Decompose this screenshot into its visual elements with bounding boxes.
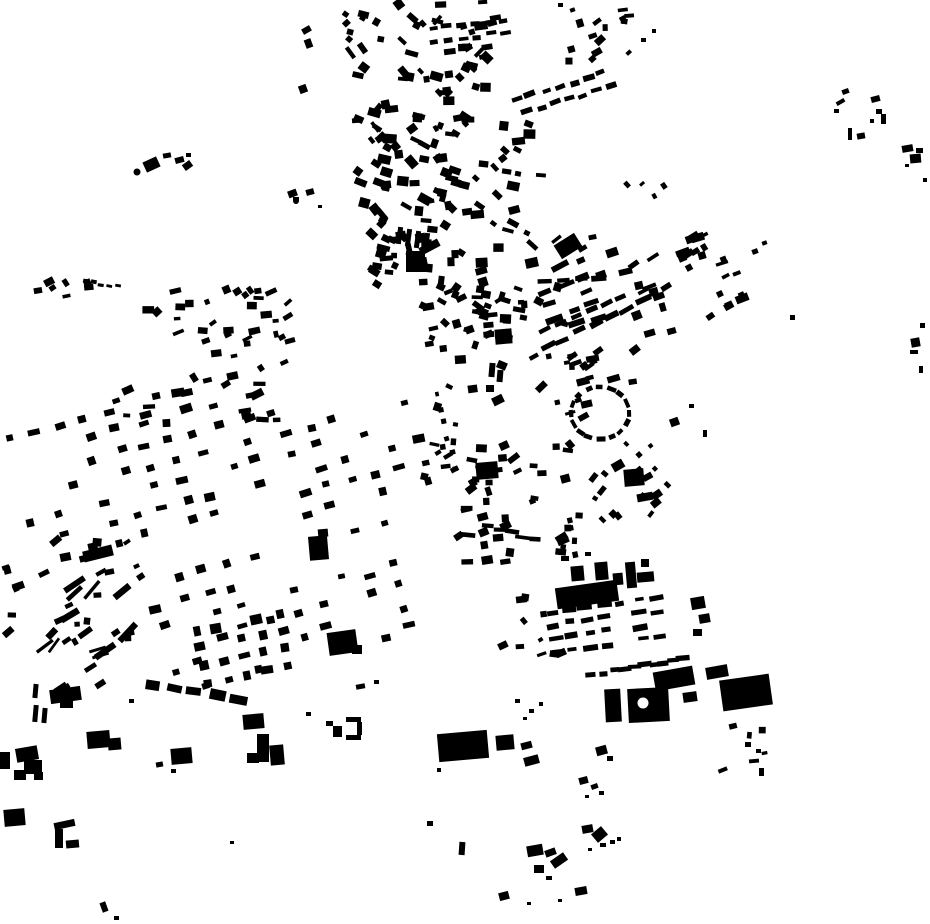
building [203, 679, 212, 688]
building [259, 646, 268, 656]
building [340, 455, 349, 464]
building [280, 643, 289, 653]
building [570, 400, 576, 408]
building [682, 691, 697, 703]
building [429, 70, 444, 82]
building [588, 234, 597, 240]
building [635, 294, 652, 306]
building [372, 17, 381, 27]
building [167, 683, 183, 694]
building [427, 821, 433, 826]
building [790, 315, 795, 320]
building [345, 46, 356, 59]
building [529, 352, 539, 360]
building [266, 409, 275, 417]
building [649, 594, 664, 602]
building [759, 768, 764, 776]
building [567, 45, 576, 53]
building [374, 680, 379, 684]
building [429, 442, 439, 447]
building [500, 145, 510, 155]
building [399, 605, 408, 614]
building [535, 380, 548, 393]
building [564, 94, 575, 101]
building [570, 79, 580, 87]
building [121, 384, 134, 395]
building [269, 744, 285, 765]
building [555, 548, 566, 556]
building [254, 288, 262, 295]
building [99, 901, 108, 912]
building [48, 638, 60, 654]
building [287, 189, 298, 199]
building [319, 600, 329, 608]
building [513, 146, 522, 154]
building [759, 727, 766, 734]
building [478, 527, 490, 538]
building [605, 247, 619, 259]
building [385, 269, 394, 275]
building [250, 553, 260, 561]
building [55, 829, 63, 848]
building [447, 257, 454, 266]
building [6, 434, 14, 442]
building [923, 178, 927, 182]
building [99, 499, 110, 507]
building [470, 21, 479, 26]
building [700, 243, 708, 252]
building [525, 257, 539, 269]
building [580, 287, 593, 296]
building [243, 437, 252, 446]
building [507, 452, 520, 464]
figure-ground-map [0, 0, 930, 924]
building [391, 261, 399, 270]
building [121, 466, 131, 476]
building [213, 420, 224, 430]
building [527, 902, 531, 905]
building [302, 510, 313, 519]
building [414, 206, 423, 216]
building [586, 355, 600, 363]
building [553, 443, 560, 450]
building [198, 327, 208, 334]
building [24, 760, 42, 774]
building [485, 480, 492, 486]
building [585, 375, 594, 381]
building [575, 512, 583, 518]
building [209, 688, 227, 702]
building [221, 285, 231, 295]
building [721, 273, 730, 280]
courtyard-hole [638, 698, 649, 709]
building [402, 621, 415, 629]
building [537, 104, 547, 112]
building [537, 287, 551, 297]
building [104, 408, 116, 416]
building [554, 399, 560, 405]
building [186, 153, 191, 157]
building [729, 723, 738, 730]
building [749, 759, 759, 764]
building [405, 243, 412, 253]
building [751, 248, 758, 255]
building [256, 417, 269, 423]
building [857, 132, 866, 139]
building [685, 263, 694, 272]
building [229, 694, 248, 706]
building [429, 26, 437, 31]
building [209, 319, 217, 326]
building [555, 83, 566, 91]
building [472, 35, 481, 41]
building [588, 848, 592, 851]
building [561, 321, 569, 328]
building [301, 25, 312, 35]
building [632, 623, 648, 632]
building [148, 604, 161, 615]
building [427, 226, 438, 234]
building [544, 847, 557, 857]
building [237, 602, 246, 609]
building [394, 579, 402, 587]
building [600, 843, 606, 847]
building [834, 109, 839, 113]
building [354, 177, 368, 188]
building [599, 671, 607, 677]
building [14, 770, 26, 780]
building [693, 629, 702, 636]
building [346, 735, 361, 740]
building [382, 142, 392, 152]
building [576, 256, 586, 264]
building [513, 286, 522, 293]
building [315, 464, 328, 473]
building [542, 299, 556, 308]
building [659, 302, 667, 312]
building [289, 586, 298, 593]
building [549, 635, 564, 642]
building [172, 668, 180, 676]
building [443, 37, 452, 43]
building [59, 552, 71, 562]
building [365, 227, 378, 240]
building [523, 129, 535, 139]
building [142, 156, 160, 172]
building [109, 519, 119, 527]
building [870, 95, 880, 103]
building [594, 561, 609, 580]
building [187, 429, 197, 439]
building [625, 49, 632, 56]
building [409, 180, 419, 186]
building [664, 481, 672, 489]
building [486, 30, 497, 35]
building [430, 138, 439, 149]
building [129, 699, 134, 703]
building [542, 88, 551, 95]
building [456, 22, 466, 28]
building [440, 444, 446, 450]
building [444, 436, 450, 442]
building [204, 298, 211, 305]
building [501, 514, 509, 522]
building [617, 837, 621, 841]
building [33, 287, 42, 294]
building [641, 38, 646, 42]
building [370, 470, 380, 480]
building [459, 842, 466, 855]
building [156, 504, 168, 511]
building [123, 539, 131, 546]
building [429, 39, 438, 45]
building [546, 353, 552, 359]
building [597, 485, 607, 496]
building [34, 772, 43, 780]
building [232, 287, 242, 297]
building [719, 674, 773, 712]
building [266, 615, 275, 624]
building [561, 556, 569, 561]
building [174, 317, 181, 321]
building [500, 314, 512, 323]
building [496, 370, 503, 382]
building [140, 528, 148, 537]
building [564, 525, 571, 532]
building [627, 410, 631, 417]
building [564, 631, 578, 639]
building [0, 752, 10, 769]
building [499, 121, 509, 131]
building [64, 602, 73, 609]
building [92, 538, 102, 547]
building [238, 651, 251, 659]
building [364, 572, 376, 580]
building [583, 644, 599, 652]
building [523, 754, 540, 767]
building [435, 1, 446, 8]
building [592, 495, 599, 501]
building [705, 664, 729, 680]
building [669, 417, 680, 428]
building [419, 279, 428, 286]
building [55, 421, 67, 431]
building [439, 345, 447, 352]
building [380, 166, 394, 178]
building [150, 481, 159, 489]
building [578, 93, 588, 100]
building [421, 239, 431, 247]
building [490, 163, 499, 172]
building [242, 670, 251, 680]
building [870, 119, 874, 123]
building [667, 327, 677, 335]
building [342, 19, 351, 28]
building [660, 282, 672, 292]
building [230, 463, 238, 470]
building [482, 523, 494, 528]
building [389, 559, 398, 567]
building [322, 480, 330, 487]
building [139, 410, 152, 420]
building [493, 534, 504, 542]
building [761, 240, 767, 245]
building [175, 303, 185, 310]
building [247, 302, 257, 310]
building [61, 636, 71, 645]
building [345, 35, 353, 43]
building [436, 153, 448, 163]
building [598, 516, 606, 524]
building [591, 826, 608, 843]
building [461, 506, 473, 511]
building [272, 319, 278, 323]
building [483, 498, 490, 505]
building [472, 476, 479, 482]
building [597, 613, 610, 620]
building [523, 89, 536, 99]
building [506, 181, 520, 192]
building [146, 464, 156, 473]
building [357, 61, 370, 74]
building [493, 243, 503, 252]
building [631, 310, 643, 322]
building [381, 634, 391, 643]
building [41, 708, 47, 723]
building [201, 337, 210, 345]
building [581, 616, 594, 623]
building [841, 88, 849, 95]
building [484, 486, 492, 496]
building [220, 379, 231, 389]
building [151, 392, 160, 400]
building [595, 745, 608, 757]
building [567, 517, 573, 524]
building [604, 689, 622, 723]
building [71, 637, 79, 646]
building [32, 684, 38, 698]
building [592, 17, 602, 26]
building [368, 136, 376, 144]
building [591, 275, 606, 282]
building [93, 592, 101, 598]
building [554, 336, 569, 346]
building [346, 28, 354, 35]
building [222, 559, 232, 569]
building [133, 511, 142, 519]
building [423, 76, 430, 83]
building [162, 435, 172, 444]
building [652, 29, 656, 33]
building [574, 886, 587, 896]
building [631, 608, 647, 615]
building [761, 751, 767, 755]
building [492, 189, 503, 200]
building [112, 583, 131, 600]
building [635, 451, 642, 458]
building [623, 398, 630, 408]
building [705, 312, 715, 321]
building [698, 613, 710, 624]
building [423, 263, 433, 272]
building [437, 730, 489, 762]
building [247, 753, 259, 763]
building [83, 617, 90, 625]
building [526, 239, 538, 251]
building [299, 488, 313, 499]
building [623, 181, 631, 189]
building [412, 433, 425, 443]
building [567, 353, 576, 360]
building [77, 626, 93, 640]
building [520, 617, 528, 625]
building [605, 81, 617, 90]
building [569, 7, 575, 12]
building [377, 36, 384, 43]
building [629, 344, 641, 356]
building [495, 467, 503, 473]
building [615, 601, 624, 608]
building [171, 769, 176, 773]
building [159, 620, 171, 630]
building [578, 776, 589, 785]
building [175, 476, 188, 485]
building [500, 30, 511, 36]
building [366, 588, 377, 598]
building [123, 413, 130, 417]
building [498, 454, 507, 462]
building [115, 284, 121, 288]
building [611, 459, 626, 473]
building [280, 429, 293, 438]
building [585, 552, 591, 556]
building [211, 349, 222, 357]
building [836, 98, 846, 106]
building [639, 181, 645, 187]
building [607, 374, 621, 384]
building [716, 290, 724, 298]
building [614, 293, 626, 302]
building [248, 327, 261, 336]
building [507, 218, 520, 229]
building [86, 730, 110, 749]
building [471, 340, 479, 349]
building [585, 672, 596, 678]
building [600, 298, 613, 308]
building [97, 283, 103, 287]
building [537, 470, 546, 476]
building [558, 899, 562, 902]
building [318, 205, 322, 208]
building [919, 366, 923, 373]
building [434, 449, 441, 456]
building [901, 144, 913, 153]
building [549, 98, 561, 107]
building [490, 220, 498, 227]
building [422, 459, 430, 466]
building [253, 382, 265, 386]
building [307, 424, 316, 433]
building [237, 622, 248, 629]
building [647, 510, 654, 518]
building [437, 768, 441, 772]
building [293, 609, 303, 618]
building [208, 403, 218, 410]
building [284, 298, 293, 306]
building [189, 372, 199, 383]
building [357, 42, 368, 55]
building [85, 431, 97, 442]
